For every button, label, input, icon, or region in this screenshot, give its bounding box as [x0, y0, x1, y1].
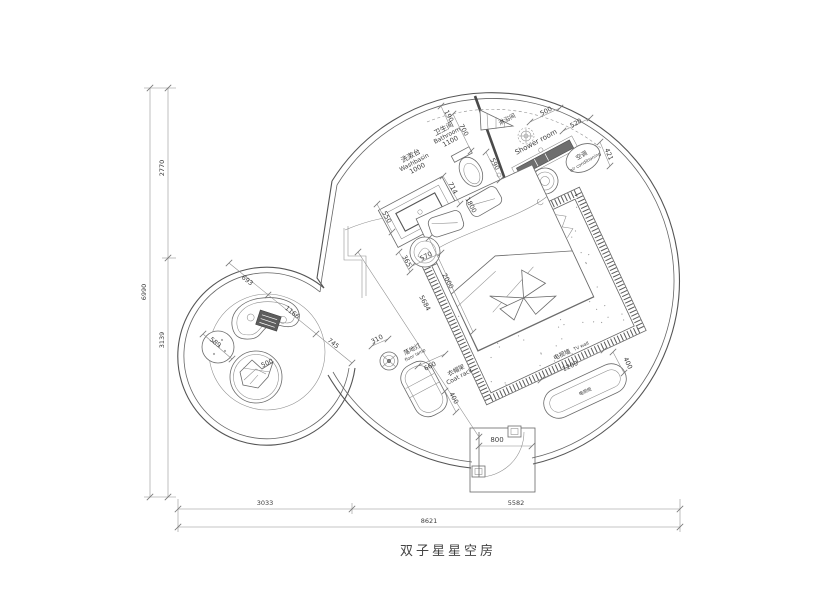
dimension-lines-left	[144, 85, 176, 500]
dim-190: 190	[442, 109, 455, 124]
dim-421: 421	[603, 147, 615, 162]
dim-bottom-left: 3033	[257, 499, 274, 507]
dim-total-width: 8621	[421, 517, 438, 525]
dim-400-coat: 400	[447, 391, 460, 406]
dim-1200: 1200	[561, 359, 579, 373]
floor-plan-drawing: 空调 air conditioning	[0, 0, 837, 592]
dim-shower-500: 500	[539, 105, 554, 118]
drawing-title: 双子星星空房	[400, 543, 496, 559]
dim-door-800: 800	[490, 436, 503, 444]
dim-310: 310	[370, 333, 385, 346]
dim-left-bottom: 3139	[158, 332, 166, 349]
round-chair	[230, 351, 282, 403]
dim-left-top: 2770	[158, 160, 166, 177]
dim-400-tv: 400	[622, 356, 635, 371]
floor-lamp	[380, 352, 398, 370]
kidney-desk	[228, 291, 303, 342]
dimension-lines-bottom	[175, 499, 683, 532]
dim-total-height: 6990	[140, 284, 148, 301]
dim-520: 520	[569, 117, 584, 130]
junction-walls	[317, 181, 397, 298]
dim-5684: 5684	[417, 294, 432, 312]
dim-590: 590	[488, 157, 501, 172]
floor-plan-page: 空调 air conditioning	[0, 0, 837, 592]
dim-bottom-right: 5582	[508, 499, 525, 507]
dim-700: 700	[457, 123, 470, 138]
dim-693: 693	[240, 273, 255, 287]
dim-745: 745	[326, 336, 341, 350]
